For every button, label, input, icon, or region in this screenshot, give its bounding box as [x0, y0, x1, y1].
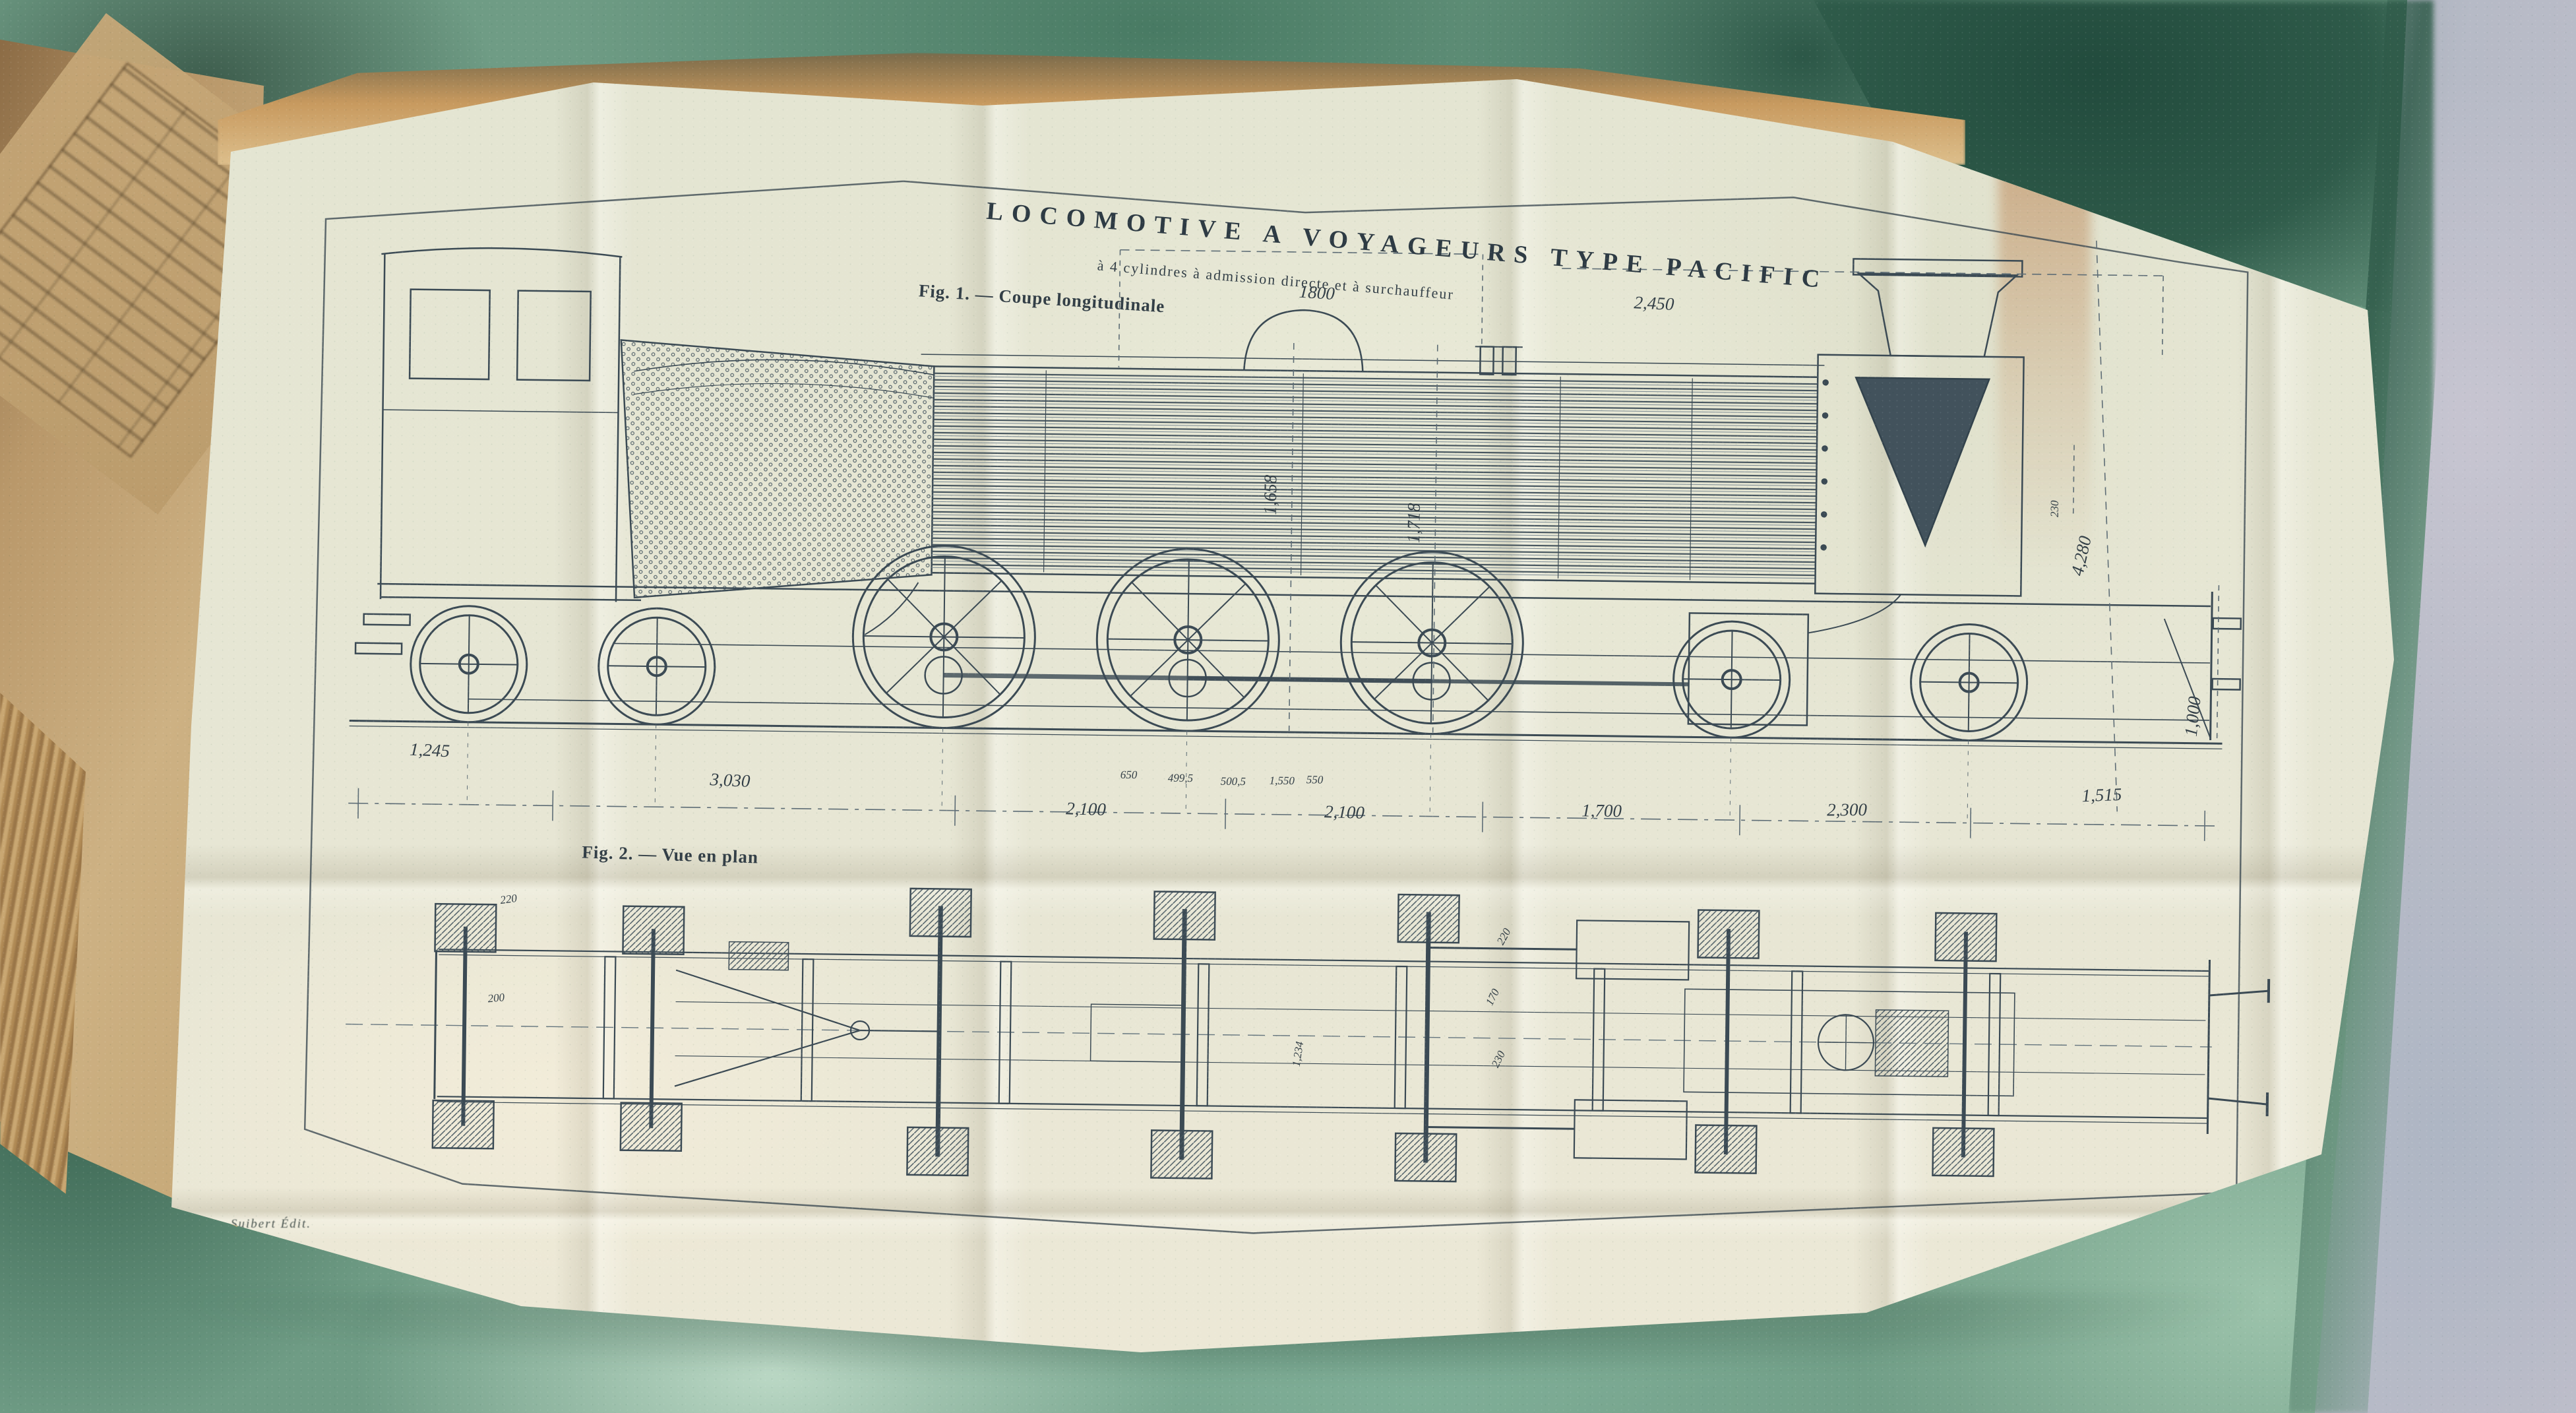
dim-label: 650 — [1120, 769, 1138, 782]
dim-label: 2,100 — [1066, 798, 1107, 820]
dim-label: 1,515 — [2081, 784, 2122, 806]
dim-label: 230 — [2048, 500, 2062, 517]
dim-label: 3,030 — [710, 769, 751, 792]
dim-label: 1,000 — [2181, 695, 2205, 738]
dim-label: 1,700 — [1581, 800, 1622, 821]
dim-label: 1,550 — [1270, 774, 1295, 788]
dim-label: 2,100 — [1324, 801, 1365, 823]
foldout-plate: LOCOMOTIVE A VOYAGEURS TYPE PACIFIC à 4 … — [152, 66, 2427, 1379]
engraving-artwork: LOCOMOTIVE A VOYAGEURS TYPE PACIFIC à 4 … — [264, 139, 2322, 1286]
dim-label: 1,718 — [1403, 503, 1425, 543]
publisher-imprint: Suibert Édit. — [231, 1217, 311, 1232]
dim-label: 499,5 — [1168, 772, 1193, 785]
fig1-and-fig2-drawing — [264, 139, 2322, 1286]
dim-label: 220 — [499, 892, 518, 907]
dim-label: 2,450 — [1634, 292, 1674, 315]
dim-label: 1,245 — [410, 739, 450, 762]
dim-label: 200 — [487, 991, 505, 1005]
dim-label: 550 — [1306, 773, 1324, 786]
dim-label: 2,300 — [1827, 800, 1867, 820]
dim-label: 1,658 — [1260, 475, 1281, 515]
dim-label: 1800 — [1299, 282, 1335, 304]
photo-scene: LOCOMOTIVE A VOYAGEURS TYPE PACIFIC à 4 … — [0, 0, 2576, 1413]
dim-label: 500,5 — [1221, 775, 1246, 788]
